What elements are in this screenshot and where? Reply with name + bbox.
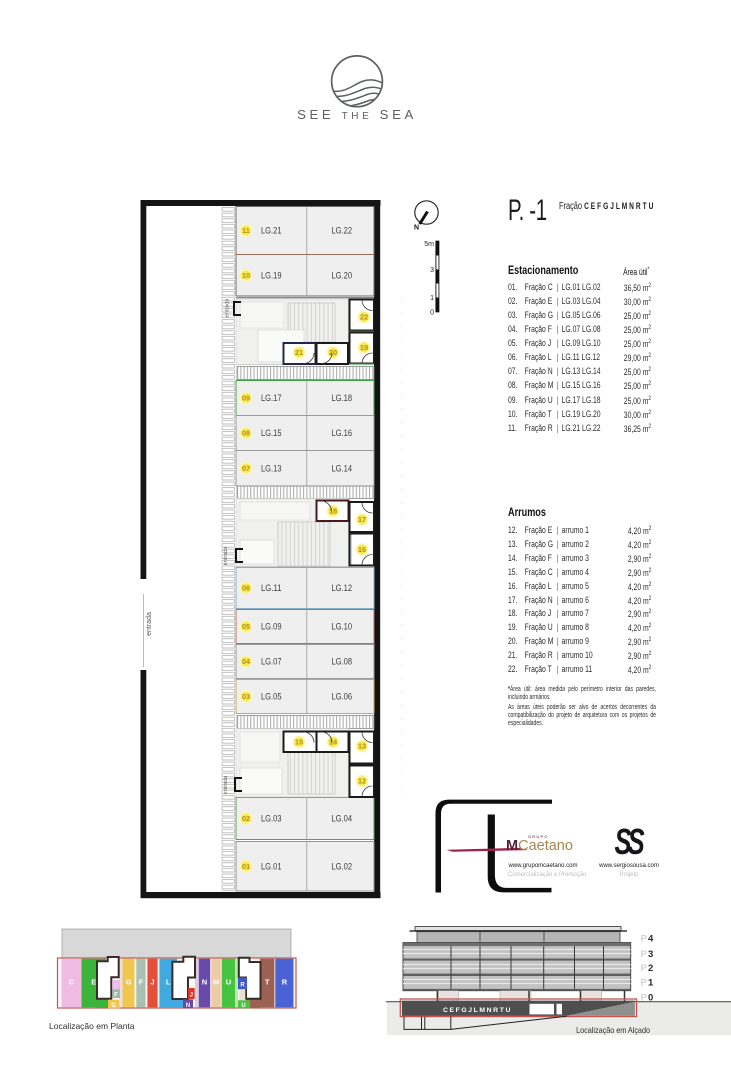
svg-text:2: 2 bbox=[648, 963, 653, 974]
svg-text:J: J bbox=[150, 978, 154, 987]
svg-text:F: F bbox=[139, 978, 144, 987]
svg-text:F: F bbox=[114, 993, 118, 999]
svg-text:N: N bbox=[414, 225, 419, 232]
svg-text:LG.04: LG.04 bbox=[332, 814, 353, 824]
svg-text:LG.11: LG.11 bbox=[261, 583, 282, 593]
svg-text:LG.01: LG.01 bbox=[261, 861, 282, 871]
svg-text:LG.17: LG.17 bbox=[261, 393, 282, 403]
svg-text:LG.03: LG.03 bbox=[261, 814, 282, 824]
svg-text:06: 06 bbox=[242, 584, 250, 593]
svg-text:CEFGJLMNRTU: CEFGJLMNRTU bbox=[443, 1007, 512, 1014]
svg-text:N: N bbox=[202, 978, 207, 987]
svg-text:18: 18 bbox=[329, 507, 337, 516]
svg-text:entrada: entrada bbox=[225, 298, 231, 318]
svg-text:T: T bbox=[265, 978, 270, 987]
svg-text:R: R bbox=[240, 983, 245, 989]
svg-text:N: N bbox=[186, 1003, 190, 1009]
svg-text:03: 03 bbox=[242, 692, 250, 701]
svg-text:21: 21 bbox=[295, 348, 303, 357]
svg-text:3: 3 bbox=[648, 949, 653, 960]
svg-text:22: 22 bbox=[360, 313, 368, 322]
svg-text:0: 0 bbox=[648, 992, 653, 1003]
svg-text:05: 05 bbox=[242, 622, 250, 631]
svg-text:J: J bbox=[190, 993, 193, 999]
svg-text:P: P bbox=[641, 992, 648, 1003]
svg-text:P: P bbox=[641, 963, 648, 974]
svg-text:12: 12 bbox=[358, 777, 366, 786]
svg-text:G: G bbox=[126, 978, 132, 987]
svg-text:G: G bbox=[111, 1003, 116, 1009]
svg-text:17: 17 bbox=[358, 515, 366, 524]
svg-text:LG.15: LG.15 bbox=[261, 428, 282, 438]
svg-text:LG.20: LG.20 bbox=[332, 270, 353, 280]
svg-text:LG.02: LG.02 bbox=[332, 861, 353, 871]
svg-text:14: 14 bbox=[329, 738, 338, 747]
svg-text:0: 0 bbox=[430, 310, 434, 317]
svg-text:10: 10 bbox=[242, 271, 250, 280]
svg-text:16: 16 bbox=[358, 545, 366, 554]
svg-text:4: 4 bbox=[648, 933, 654, 944]
svg-text:C: C bbox=[69, 978, 75, 987]
svg-text:R: R bbox=[282, 978, 288, 987]
svg-text:5m: 5m bbox=[424, 241, 434, 248]
svg-text:LG.21: LG.21 bbox=[261, 226, 282, 236]
svg-text:19: 19 bbox=[360, 343, 368, 352]
svg-text:LG.07: LG.07 bbox=[261, 657, 282, 667]
svg-text:07: 07 bbox=[242, 464, 250, 473]
svg-text:entrada: entrada bbox=[223, 775, 229, 795]
svg-text:LG.05: LG.05 bbox=[261, 692, 282, 702]
svg-text:08: 08 bbox=[242, 429, 250, 438]
svg-text:LG.16: LG.16 bbox=[332, 428, 353, 438]
svg-text:3: 3 bbox=[430, 267, 434, 274]
svg-text:02: 02 bbox=[242, 814, 250, 823]
svg-text:P: P bbox=[641, 949, 648, 960]
svg-text:1: 1 bbox=[430, 295, 434, 302]
svg-text:01: 01 bbox=[242, 862, 250, 871]
svg-text:LG.13: LG.13 bbox=[261, 463, 282, 473]
svg-text:LG.09: LG.09 bbox=[261, 622, 282, 632]
svg-text:P: P bbox=[641, 933, 648, 944]
svg-text:P: P bbox=[641, 977, 648, 988]
svg-text:LG.18: LG.18 bbox=[332, 393, 353, 403]
svg-text:20: 20 bbox=[329, 348, 337, 357]
svg-text:15: 15 bbox=[295, 738, 303, 747]
svg-text:entrada: entrada bbox=[146, 612, 153, 636]
svg-text:LG.10: LG.10 bbox=[332, 622, 353, 632]
svg-text:LG.14: LG.14 bbox=[332, 463, 353, 473]
svg-text:U: U bbox=[226, 978, 231, 987]
svg-text:U: U bbox=[241, 1003, 245, 1009]
svg-text:LG.06: LG.06 bbox=[332, 692, 353, 702]
svg-text:C: C bbox=[114, 983, 119, 989]
svg-text:LG.19: LG.19 bbox=[261, 270, 282, 280]
svg-text:11: 11 bbox=[242, 226, 250, 235]
svg-text:LG.08: LG.08 bbox=[332, 657, 353, 667]
svg-text:04: 04 bbox=[242, 657, 251, 666]
svg-text:entrada: entrada bbox=[223, 546, 229, 566]
svg-text:13: 13 bbox=[358, 742, 366, 751]
svg-text:M: M bbox=[213, 978, 219, 987]
svg-text:L: L bbox=[166, 978, 171, 987]
svg-text:09: 09 bbox=[242, 394, 250, 403]
svg-text:LG.22: LG.22 bbox=[332, 226, 353, 236]
svg-text:E: E bbox=[91, 978, 96, 987]
svg-text:1: 1 bbox=[648, 977, 654, 988]
svg-text:LG.12: LG.12 bbox=[332, 583, 353, 593]
